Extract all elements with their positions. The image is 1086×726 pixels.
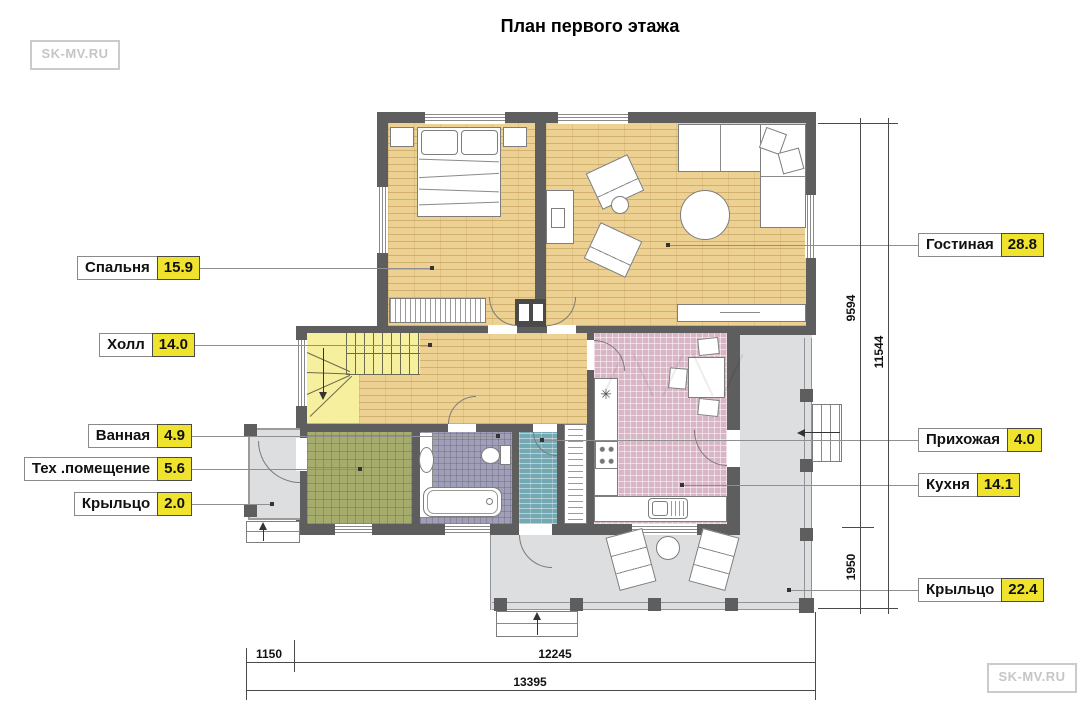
leader-dot xyxy=(540,438,544,442)
dim-ext-right-bottom xyxy=(818,608,898,609)
label-entry-hall-name: Прихожая xyxy=(918,428,1008,452)
hall-left-window xyxy=(296,340,307,406)
round-table xyxy=(680,190,730,240)
dim-ext-right-mid xyxy=(842,527,874,528)
dim-bottom-left: 1150 xyxy=(240,647,298,660)
wall-hall-tech xyxy=(307,424,448,432)
toilet-tank xyxy=(500,445,511,465)
label-kitchen-area: 14.1 xyxy=(977,473,1020,497)
label-living-room-area: 28.8 xyxy=(1001,233,1044,257)
leader-bedroom xyxy=(200,268,432,269)
bathroom-sink xyxy=(419,447,434,473)
dim-bottom-main: 12245 xyxy=(520,647,590,660)
dim-ext-right-top xyxy=(818,123,898,124)
porch-left-edge xyxy=(490,535,491,610)
bathroom-door-opening xyxy=(448,424,476,432)
wall-kitchen-west xyxy=(587,370,594,524)
dim-right-lower: 1950 xyxy=(844,537,858,597)
porch-post xyxy=(494,598,507,611)
bed-pillow xyxy=(421,130,458,155)
toilet-bowl xyxy=(481,447,500,464)
label-porch-large: Крыльцо 22.4 xyxy=(918,578,1044,602)
label-tech-room-area: 5.6 xyxy=(157,457,192,481)
nightstand xyxy=(390,127,414,147)
stair-direction-line xyxy=(323,348,324,392)
leader-dot xyxy=(270,502,274,506)
sideboard-handle xyxy=(720,312,760,313)
sink-bowl xyxy=(652,501,668,516)
kitchen-table xyxy=(688,357,725,398)
dim-line-right-inner xyxy=(860,118,861,614)
living-door-opening xyxy=(547,325,576,334)
label-porch-large-name: Крыльцо xyxy=(918,578,1002,602)
small-porch-post xyxy=(244,504,257,517)
leader-dot xyxy=(358,467,362,471)
sink-drainer xyxy=(671,501,685,516)
small-porch-steps xyxy=(246,521,300,543)
small-porch-arrow-icon xyxy=(259,522,267,530)
label-bathroom: Ванная 4.9 xyxy=(88,424,192,448)
leader-dot xyxy=(787,588,791,592)
entry-porch-door-opening xyxy=(519,524,552,535)
dim-right-upper: 9594 xyxy=(844,278,858,338)
bedroom-door-opening xyxy=(488,325,517,334)
leader-bathroom xyxy=(192,436,498,437)
chimney-flue xyxy=(519,304,529,321)
leader-dot xyxy=(428,343,432,347)
dim-ext-bottom-right xyxy=(815,612,816,700)
leader-entry-hall xyxy=(542,440,918,441)
side-table xyxy=(611,196,629,214)
entrance-door-opening xyxy=(727,430,740,467)
bedroom-left-window xyxy=(377,187,388,253)
leader-dot xyxy=(430,266,434,270)
label-bedroom-area: 15.9 xyxy=(157,256,200,280)
chimney-flue xyxy=(533,304,543,321)
dim-line-bottom-inner xyxy=(246,662,815,663)
nightstand xyxy=(503,127,527,147)
stove xyxy=(595,441,618,469)
veranda-right-railing xyxy=(804,338,812,606)
stair-direction-arrow-icon xyxy=(319,392,327,400)
kitchen-door-opening xyxy=(587,340,594,370)
wall-bath-entry xyxy=(512,424,519,524)
veranda-post xyxy=(800,528,813,541)
leader-hall xyxy=(195,345,430,346)
label-kitchen-name: Кухня xyxy=(918,473,978,497)
bed-pillow xyxy=(461,130,498,155)
dim-line-bottom-outer xyxy=(246,690,815,691)
label-porch-small: Крыльцо 2.0 xyxy=(74,492,192,516)
label-bathroom-area: 4.9 xyxy=(157,424,192,448)
sideboard xyxy=(677,304,806,322)
kitchen-chair xyxy=(697,398,720,417)
tech-room-window xyxy=(335,524,372,535)
label-tech-room-name: Тех .помещение xyxy=(24,457,158,481)
label-living-room-name: Гостиная xyxy=(918,233,1002,257)
leader-dot xyxy=(680,483,684,487)
leader-kitchen xyxy=(682,485,918,486)
label-bathroom-name: Ванная xyxy=(88,424,158,448)
veranda-post xyxy=(800,389,813,402)
living-top-window xyxy=(558,112,628,124)
label-hall: Холл 14.0 xyxy=(99,333,195,357)
bathroom-window xyxy=(445,524,490,535)
tech-room-floor xyxy=(307,432,412,524)
living-right-window xyxy=(805,195,816,258)
porch-post xyxy=(725,598,738,611)
dim-right-total: 11544 xyxy=(872,322,886,382)
entry-door-opening xyxy=(533,424,557,432)
porch-corner-post xyxy=(799,598,814,613)
wall-kitchen-west-stub xyxy=(587,333,594,340)
label-porch-small-area: 2.0 xyxy=(157,492,192,516)
label-bedroom-name: Спальня xyxy=(77,256,158,280)
leader-porch-small xyxy=(192,504,272,505)
page-title: План первого этажа xyxy=(400,16,780,37)
watermark-top-left: SK-MV.RU xyxy=(30,40,120,70)
leader-tech-room xyxy=(192,469,360,470)
label-hall-name: Холл xyxy=(99,333,153,357)
porch-steps-arrow-icon xyxy=(533,612,541,620)
label-hall-area: 14.0 xyxy=(152,333,195,357)
label-bedroom: Спальня 15.9 xyxy=(77,256,200,280)
porch-table xyxy=(656,536,680,560)
bathtub-drain xyxy=(486,498,493,505)
entrance-arrow-line xyxy=(804,432,840,433)
floor-plan-page: План первого этажа SK-MV.RU SK-MV.RU xyxy=(0,0,1086,726)
leader-dot xyxy=(666,243,670,247)
closet-hanger-ticks xyxy=(568,428,583,520)
leader-living-room xyxy=(668,245,918,246)
label-porch-large-area: 22.4 xyxy=(1001,578,1044,602)
entrance-arrow-icon xyxy=(797,429,805,437)
label-living-room: Гостиная 28.8 xyxy=(918,233,1044,257)
watermark-bottom-right: SK-MV.RU xyxy=(987,663,1077,693)
wall-tech-bath xyxy=(412,424,420,524)
porch-post xyxy=(570,598,583,611)
tv-icon xyxy=(551,208,565,228)
label-tech-room: Тех .помещение 5.6 xyxy=(24,457,192,481)
kitchen-chair xyxy=(697,337,720,356)
stair-mid-line xyxy=(346,353,420,354)
porch-post xyxy=(648,598,661,611)
wall-entry-top xyxy=(519,424,533,432)
wall-entry-closet xyxy=(557,424,564,524)
leader-dot xyxy=(496,434,500,438)
bedroom-top-window xyxy=(425,112,505,124)
label-kitchen: Кухня 14.1 xyxy=(918,473,1020,497)
entrance-steps xyxy=(812,404,842,462)
label-porch-small-name: Крыльцо xyxy=(74,492,158,516)
wardrobe xyxy=(389,298,486,323)
dim-line-right-outer xyxy=(888,118,889,614)
stair-treads xyxy=(346,333,420,375)
label-entry-hall: Прихожая 4.0 xyxy=(918,428,1042,452)
wall-hall-bath xyxy=(476,424,512,432)
label-entry-hall-area: 4.0 xyxy=(1007,428,1042,452)
dim-bottom-total: 13395 xyxy=(495,675,565,688)
